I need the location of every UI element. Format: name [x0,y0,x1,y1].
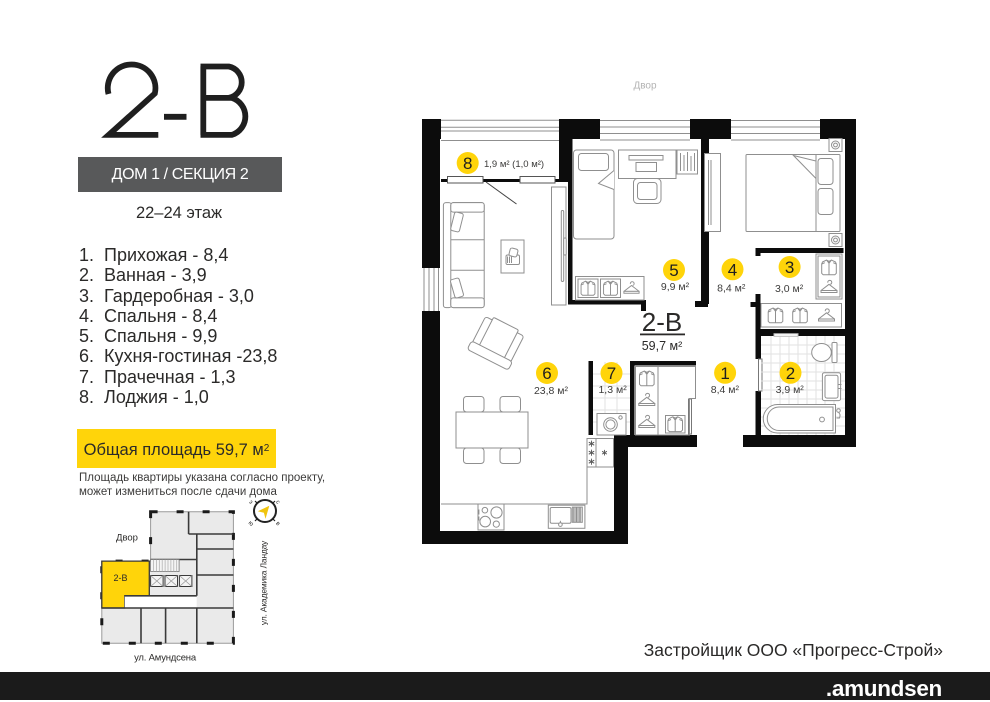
svg-text:2-В: 2-В [113,573,127,583]
svg-text:1,9 м² (1,0 м²): 1,9 м² (1,0 м²) [484,159,544,170]
svg-text:ул. Академика Ландау: ул. Академика Ландау [259,540,269,625]
svg-text:Двор: Двор [116,533,138,544]
svg-text:23,8 м²: 23,8 м² [534,385,569,397]
svg-text:7: 7 [607,364,616,383]
svg-text:2-В: 2-В [642,307,682,337]
svg-text:1: 1 [720,364,729,383]
svg-text:9,9 м²: 9,9 м² [661,281,690,293]
svg-text:3: 3 [785,258,794,277]
svg-text:2: 2 [786,364,795,383]
svg-text:ю: ю [247,520,255,528]
svg-text:Двор: Двор [633,81,657,92]
svg-text:8,4 м²: 8,4 м² [711,384,740,396]
svg-text:4: 4 [728,261,737,280]
svg-text:з: з [247,499,253,505]
svg-text:5: 5 [669,261,678,280]
svg-text:59,7 м²: 59,7 м² [642,339,683,353]
svg-text:1,3 м²: 1,3 м² [598,384,627,396]
svg-text:ул. Амундсена: ул. Амундсена [134,653,197,664]
svg-text:в: в [274,521,280,527]
svg-text:6: 6 [542,364,551,383]
svg-text:3,0 м²: 3,0 м² [775,283,804,295]
svg-text:8: 8 [463,154,472,173]
svg-text:3,9 м²: 3,9 м² [776,384,805,396]
svg-text:8,4 м²: 8,4 м² [717,283,746,295]
